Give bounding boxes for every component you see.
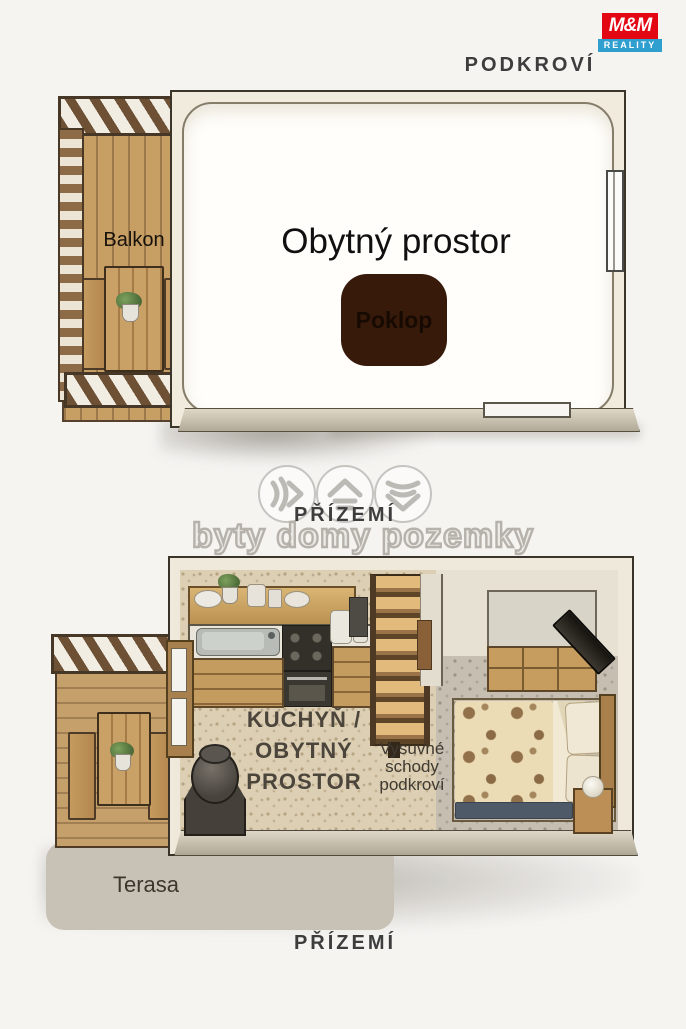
door-glass-pane <box>171 648 187 692</box>
living-space-label: Obytný prostor <box>246 220 546 264</box>
bed-end-bench <box>455 802 573 819</box>
attic-window-south <box>483 402 571 418</box>
kitchen-cabinet-right <box>332 646 372 708</box>
partition-wood-panel <box>417 620 432 670</box>
balcony-plant-pot <box>122 304 139 322</box>
cooktop <box>282 625 332 671</box>
ground-floor-label-bottom: PŘÍZEMÍ <box>276 932 414 955</box>
faucet-icon <box>268 632 275 639</box>
kitchen-cabinet-left <box>188 658 284 708</box>
sink-basin <box>202 632 264 650</box>
attic-stairs-label: Vysuvné schody podkroví <box>354 740 470 794</box>
balcony-railing <box>58 128 84 402</box>
logo-brand: M&M <box>602 13 658 39</box>
hatch-label: Poklop <box>356 307 433 334</box>
oven <box>282 671 332 707</box>
logo-division: REALITY <box>598 39 662 52</box>
lamp-icon <box>582 776 604 798</box>
terrace-label: Terasa <box>98 872 194 898</box>
terrace-bench-left <box>68 732 96 820</box>
terrace-plant-pot <box>115 754 131 771</box>
attic-window-east <box>606 170 624 272</box>
jug-icon <box>247 584 266 607</box>
balcony-label: Balkon <box>94 229 174 252</box>
attic-floor-label: PODKROVÍ <box>452 54 608 77</box>
balcony-bench-left <box>82 278 106 370</box>
canister-icon <box>268 589 282 608</box>
door-glass-pane <box>171 698 187 746</box>
watermark-tagline: byty domy pozemky <box>192 517 498 556</box>
terrace-pergola <box>51 634 179 674</box>
floorplan-canvas: M&M REALITY PODKROVÍ Balkon Obytný prost… <box>0 0 686 1029</box>
plate-icon <box>194 590 222 608</box>
attic-hatch: Poklop <box>341 274 447 366</box>
shelf-plant-pot <box>222 587 238 604</box>
kitchen-appliance <box>349 597 368 637</box>
dish-icon <box>284 591 310 608</box>
wood-stove-cap <box>199 744 231 764</box>
